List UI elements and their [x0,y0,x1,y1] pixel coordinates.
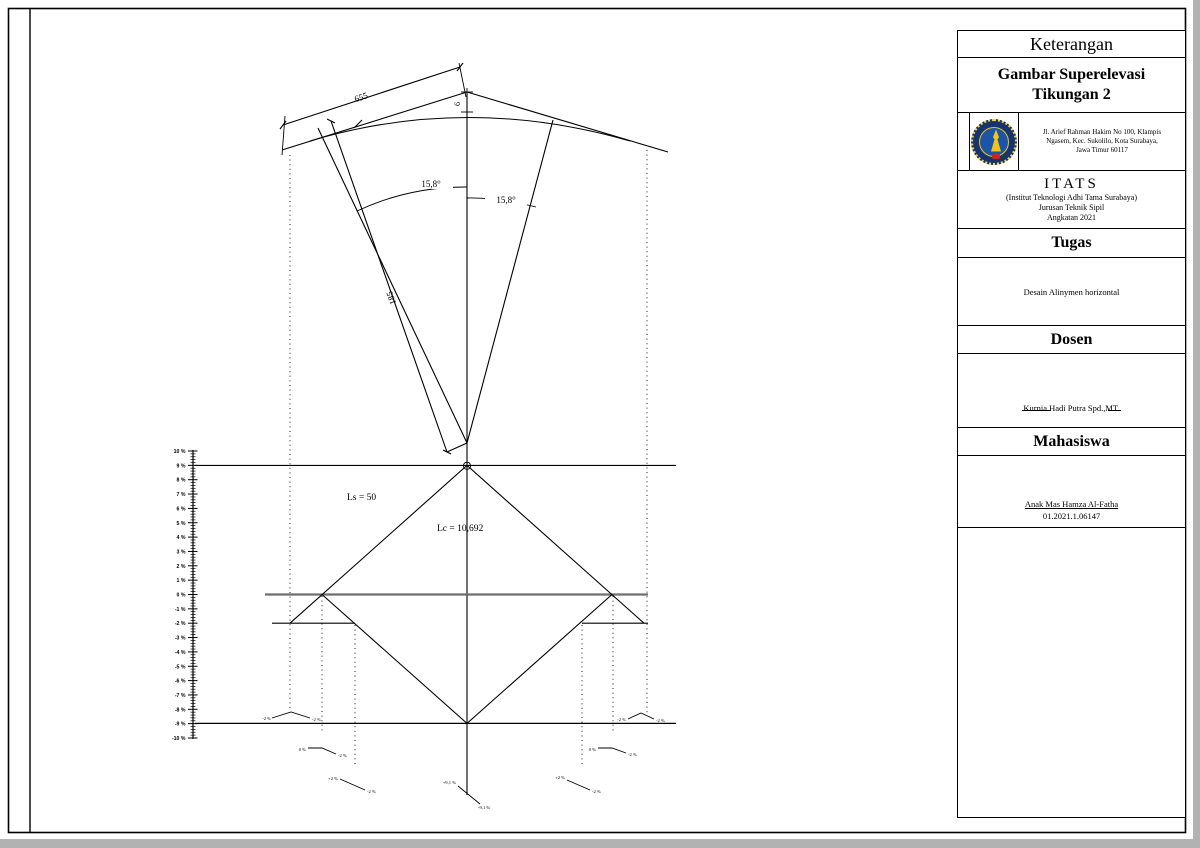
right-tangent-line [467,92,668,152]
tugas-header-label: Tugas [1051,234,1091,252]
xsec-label: -2 % [617,717,626,722]
cross-sections: -2 % -2 % 0 % -2 % +2 % -2 % +9,1 % -9,1… [262,712,665,811]
xsec-label: -2 % [262,716,271,721]
mahasiswa-header-label: Mahasiswa [1033,433,1109,451]
xsec-label: 0 % [589,747,596,752]
right-angle-label: 15,8° [496,195,516,205]
xsec-label: 0 % [299,747,306,752]
address-line: Jl. Arief Rahman Hakim No 100, Klampis [1022,128,1182,137]
axis-tick-label: -9 % [175,722,186,728]
axis-tick-label: -10 % [172,736,186,742]
institute-full-name: (Institut Teknologi Adhi Tama Surabaya) [1006,193,1137,203]
xsec-shape [567,780,590,790]
logo-ribbon [992,154,1000,159]
axis-tick-label: -7 % [175,693,186,699]
institute-row: ITATS (Institut Teknologi Adhi Tama Sura… [958,171,1185,229]
axis-tick-label: 7 % [177,492,186,498]
xsec-label: -2 % [592,789,601,794]
xsec-label: +9,1 % [443,780,456,786]
axis-tick-label: -1 % [175,607,186,613]
axis-tick-label: -6 % [175,679,186,685]
keterangan-label: Keterangan [1030,34,1113,55]
left-radius-line [318,128,467,443]
axis-tick-label: 2 % [177,564,186,570]
radius-dimension-line [331,121,447,452]
drawing-title-line1: Gambar Superelevasi [998,65,1145,85]
superelevation-diagram: 10 %9 %8 %7 %6 %5 %4 %3 %2 %1 %0 %-1 %-2… [172,150,676,765]
percent-axis-ticks: 10 %9 %8 %7 %6 %5 %4 %3 %2 %1 %0 %-1 %-2… [172,449,198,742]
tugas-content-text: Desain Alinymen horizontal [1024,287,1120,297]
tugas-header: Tugas [958,229,1185,258]
xsec-shape [340,779,365,790]
underline-mark [1108,410,1121,411]
dosen-name: Kurnia Hadi Putra Spd.,MT. [1023,403,1119,413]
axis-tick-label: -4 % [175,650,186,656]
batch: Angkatan 2021 [1047,213,1096,223]
department: Jurusan Teknik Sipil [1039,203,1105,213]
dosen-header: Dosen [958,326,1185,354]
address-line: Jawa Timur 60117 [1022,146,1182,155]
axis-tick-label: 0 % [177,593,186,599]
xsec-label: -2 % [312,717,321,722]
dosen-content: Kurnia Hadi Putra Spd.,MT. [958,354,1185,428]
drawing-title-line2: Tikungan 2 [1032,85,1110,105]
logo-cell [969,113,1019,170]
left-tangent-line [282,92,467,150]
axis-tick-label: 3 % [177,549,186,555]
itats-logo-icon [971,119,1017,165]
axis-tick-label: -3 % [175,636,186,642]
logo-address-row: Jl. Arief Rahman Hakim No 100, Klampis N… [958,113,1185,171]
dosen-header-label: Dosen [1051,331,1093,349]
axis-tick-label: 4 % [177,535,186,541]
xsec-label: +2 % [555,775,565,780]
lc-label: Lc = 10,692 [437,524,484,534]
axis-tick-label: -8 % [175,707,186,713]
xsec-label: -2 % [628,752,637,757]
institute-abbr: ITATS [1044,176,1099,193]
tangent-dimension-label: 655 [353,90,369,104]
tugas-content: Desain Alinymen horizontal [958,258,1185,326]
axis-tick-label: -5 % [175,664,186,670]
title-block-header: Keterangan [958,31,1185,58]
xsec-label: -2 % [367,789,376,794]
dim-tick [280,121,286,129]
address-line: Ngasem, Kec. Sukolilo, Kota Surabaya, [1022,137,1182,146]
mahasiswa-header: Mahasiswa [958,428,1185,456]
tangent-point-tick [354,120,362,128]
left-angle-arc [357,187,467,211]
xsec-crown-shape [628,713,654,719]
window-edge-bottom [0,839,1200,848]
axis-tick-label: 9 % [177,463,186,469]
xsec-full-super-shape [458,786,480,804]
xsec-shape [598,748,626,753]
drawing-sheet: 15,8° 15,8° 655 185 6 10 %9 %8 %7 %6 %5 … [0,0,1200,848]
window-edge-right [1193,0,1200,848]
plan-view [280,63,668,795]
construction-lines [290,150,647,765]
xsec-label: -2 % [656,718,665,723]
radius-dimension-connector [447,443,467,452]
xsec-label: -2 % [338,753,347,758]
curve-arc [310,118,630,142]
tangent-dimension-line [283,67,460,125]
right-radius-line [467,120,553,443]
empty-cell [958,528,1185,817]
xsec-label: +2 % [328,776,338,781]
student-name: Anak Mas Hamza Al-Fatha [1025,499,1118,509]
axis-tick-label: 5 % [177,521,186,527]
student-id: 01.2021.1.06147 [1043,511,1100,521]
title-block: Keterangan Gambar Superelevasi Tikungan … [957,30,1186,818]
axis-tick-label: 10 % [174,449,186,455]
underline-mark [1022,410,1050,411]
axis-tick-label: 8 % [177,478,186,484]
left-angle-label: 15,8° [421,179,441,189]
axis-tick-label: 6 % [177,506,186,512]
drawing-title: Gambar Superelevasi Tikungan 2 [958,58,1185,113]
xsec-label: -9,1 % [478,805,490,811]
xsec-crown-shape [272,712,310,718]
axis-tick-label: -2 % [175,621,186,627]
axis-tick-label: 1 % [177,578,186,584]
ls-label: Ls = 50 [347,493,376,503]
xsec-shape [308,748,336,754]
external-dimension-label: 6 [453,102,462,106]
institute-address: Jl. Arief Rahman Hakim No 100, Klampis N… [1022,128,1182,155]
mahasiswa-content: Anak Mas Hamza Al-Fatha 01.2021.1.06147 [958,456,1185,528]
